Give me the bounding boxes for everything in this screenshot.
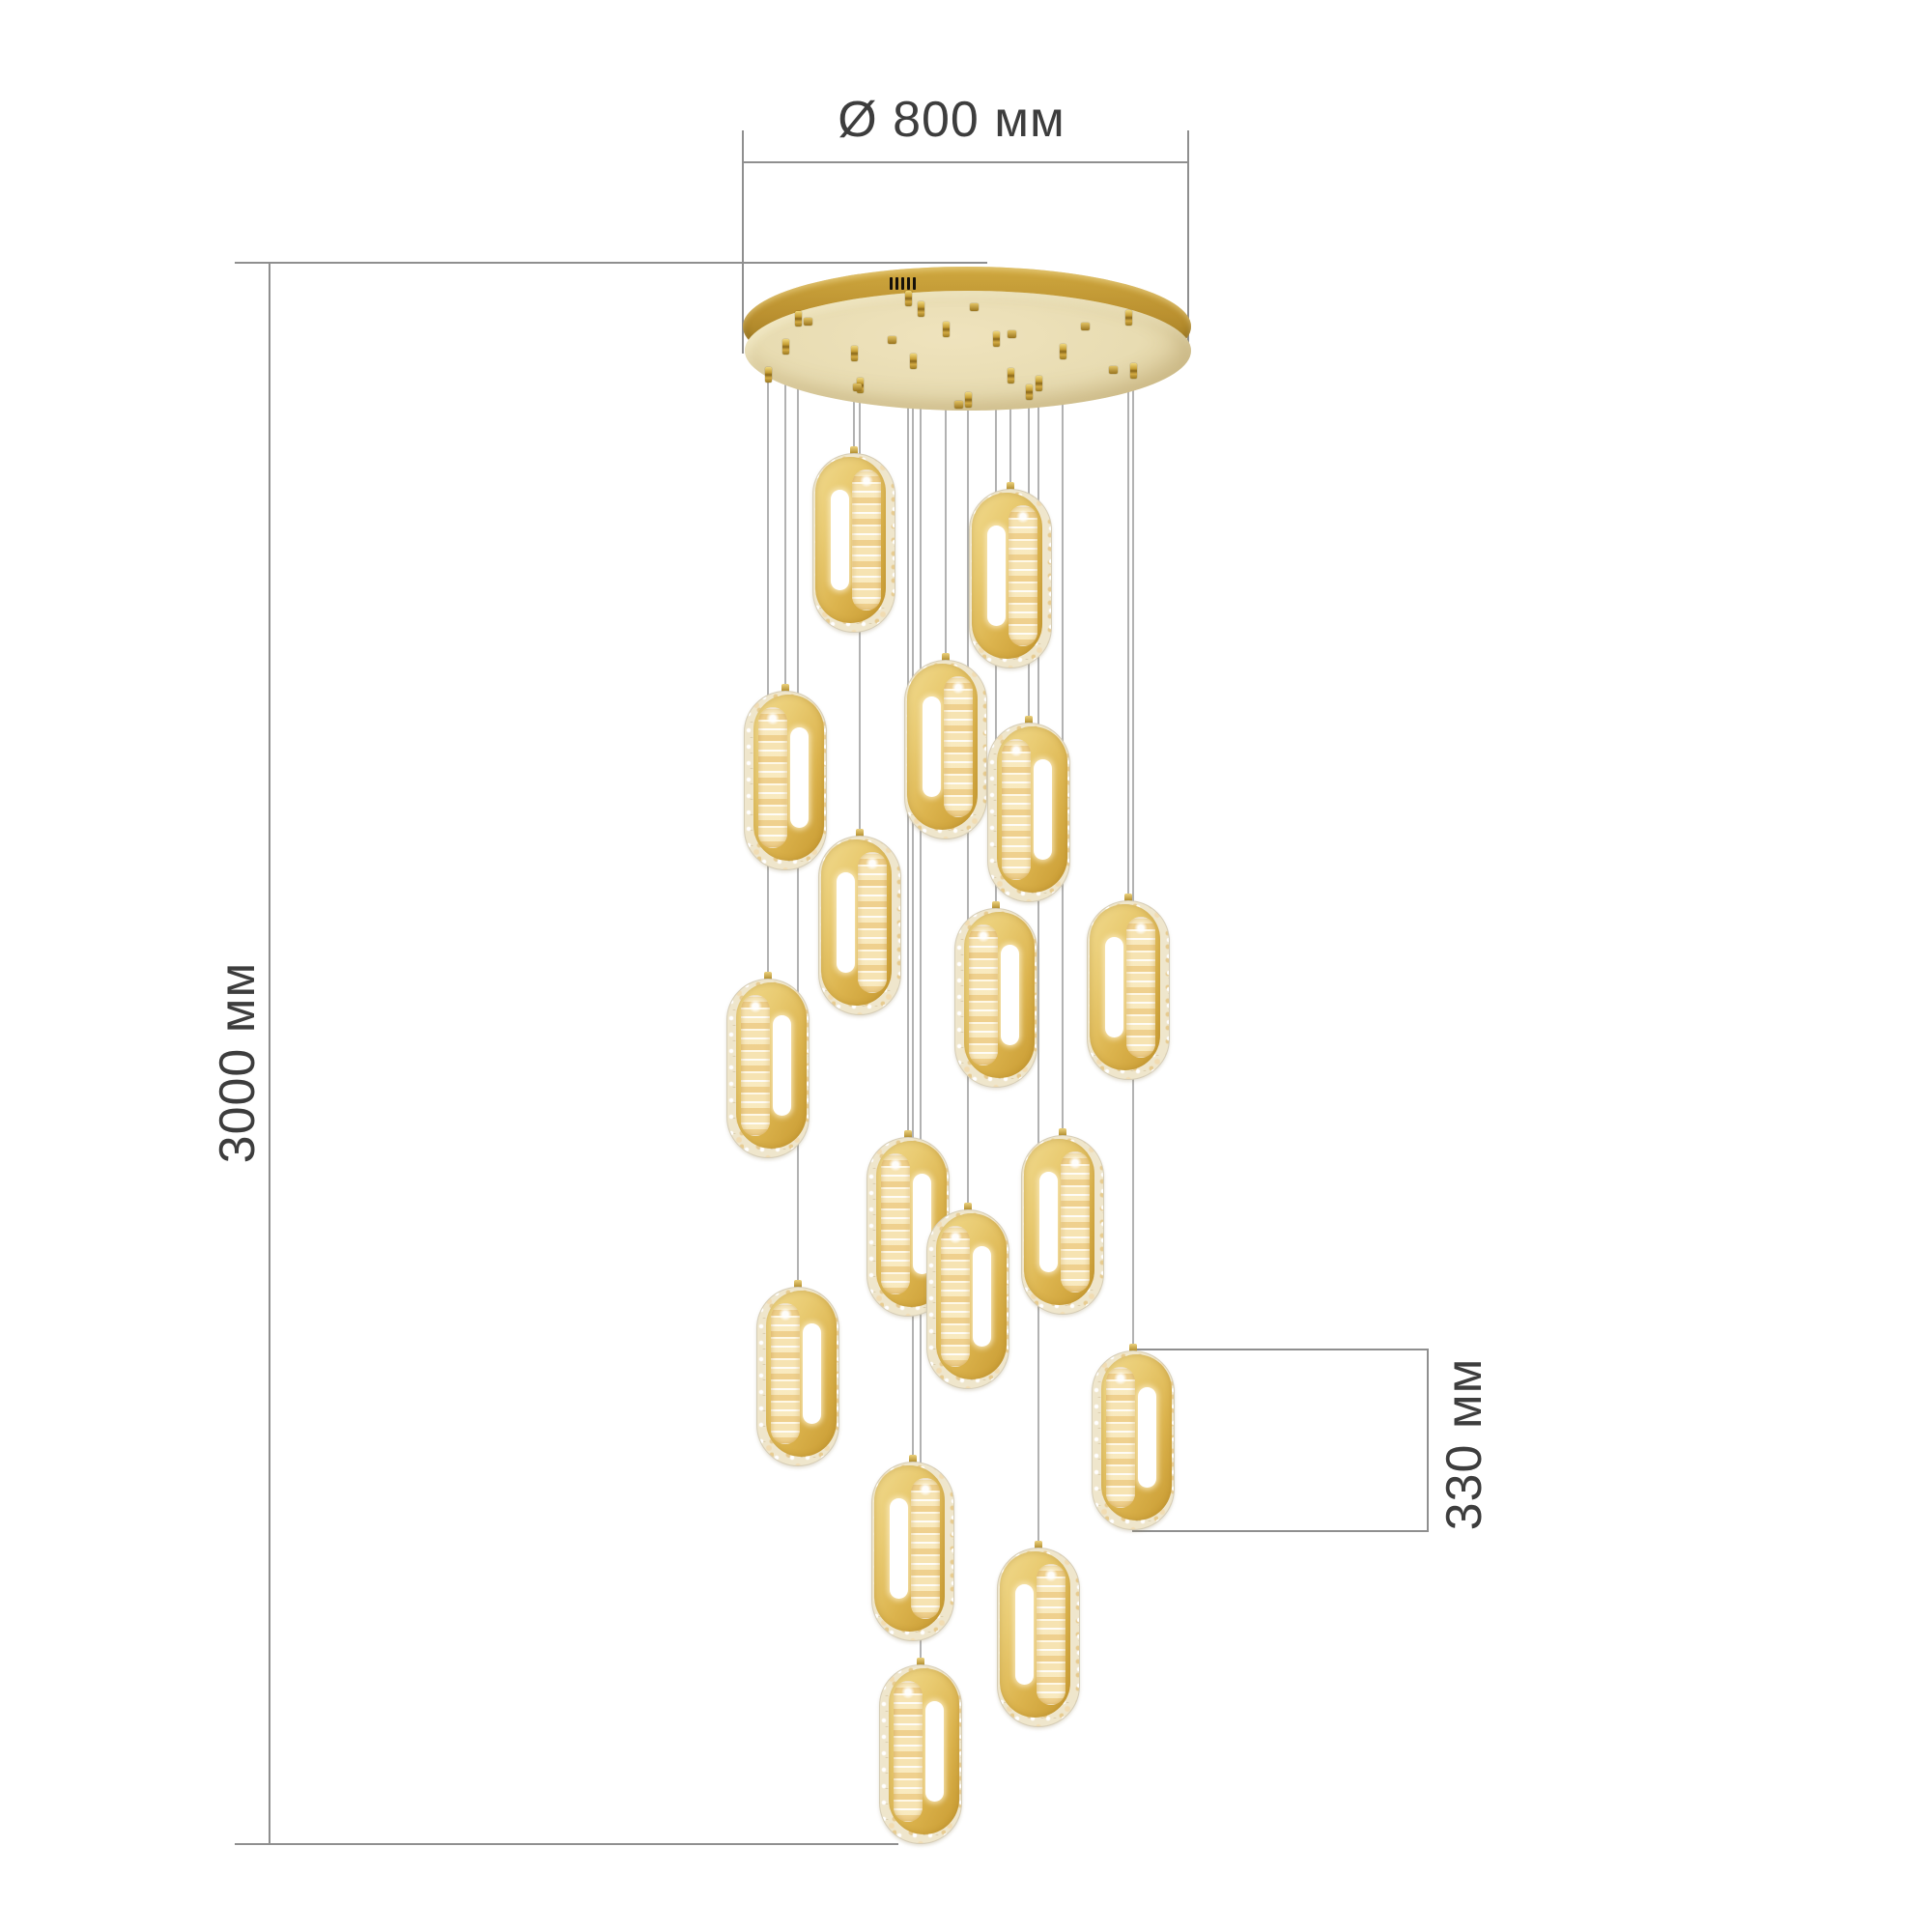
canopy-vent-slot (890, 277, 893, 290)
pendant-crystal-rim (969, 489, 1052, 668)
pendant-center-hole (890, 1498, 908, 1599)
pendant-gold-band (889, 1668, 959, 1834)
canopy-cable-grip (943, 322, 950, 337)
pendant-ring (726, 979, 810, 1158)
pendant-crystal-rim (756, 1287, 839, 1466)
pendant-led-crystal-strip (1009, 505, 1037, 646)
pendant-center-hole (773, 1015, 791, 1116)
pendant-gold-band (1000, 1551, 1070, 1718)
canopy-cable-grip (905, 291, 912, 306)
pendant-center-hole (1039, 1172, 1058, 1272)
dimension-line (743, 161, 1188, 163)
canopy-vent-slot (895, 277, 898, 290)
pendant-center-hole (1105, 937, 1123, 1037)
canopy-vent-slot (901, 277, 904, 290)
canopy-screw (804, 318, 812, 326)
suspension-wire (784, 351, 786, 691)
pendant-center-hole (837, 872, 855, 973)
dimension-diagram: Ø 800 мм 3000 мм 330 мм (0, 0, 1932, 1932)
pendant-gold-band (1090, 904, 1160, 1070)
pendant-gold-band (874, 1465, 945, 1632)
pendant-ring (1092, 1350, 1175, 1530)
pendant-crystal-rim (812, 453, 895, 633)
pendant-led-crystal-strip (858, 852, 887, 993)
pendant-height-dimension-label: 330 мм (1437, 1338, 1492, 1550)
pendant-crystal-rim (1021, 1135, 1104, 1315)
pendant-ring (812, 453, 895, 633)
pendant-center-hole (1015, 1584, 1034, 1685)
pendant-ring (904, 660, 987, 839)
canopy-screw (853, 384, 862, 391)
canopy-screw (1008, 330, 1016, 338)
pendant-gold-band (736, 982, 807, 1149)
canopy-cable-grip (1026, 384, 1033, 400)
pendant-center-hole (923, 696, 941, 797)
canopy-screw (1109, 366, 1118, 374)
pendant-center-hole (803, 1323, 821, 1424)
pendant-ring (871, 1462, 954, 1641)
dimension-line (235, 1843, 898, 1845)
pendant-center-hole (831, 490, 849, 590)
canopy-cable-grip (1060, 344, 1066, 359)
pendant-ring (926, 1209, 1009, 1389)
pendant-led-crystal-strip (894, 1681, 923, 1822)
canopy-cable-grip (1036, 376, 1042, 391)
canopy-screw (954, 401, 963, 409)
pendant-crystal-rim (871, 1462, 954, 1641)
pendant-gold-band (753, 695, 824, 861)
pendant-crystal-rim (904, 660, 987, 839)
canopy-cable-grip (910, 354, 917, 369)
pendant-led-crystal-strip (944, 676, 973, 817)
dimension-line (1427, 1349, 1429, 1532)
canopy-screw (1081, 323, 1090, 330)
pendant-center-hole (1138, 1387, 1156, 1488)
pendant-led-crystal-strip (1002, 739, 1031, 880)
canopy-cable-grip (765, 367, 772, 383)
pendant-gold-band (964, 912, 1035, 1078)
pendant-led-crystal-strip (741, 995, 770, 1136)
pendant-center-hole (973, 1246, 991, 1347)
canopy-cable-grip (1130, 363, 1137, 379)
pendant-ring (756, 1287, 839, 1466)
canopy-cable-grip (1125, 310, 1132, 326)
pendant-ring (879, 1664, 962, 1844)
pendant-gold-band (972, 493, 1042, 659)
pendant-led-crystal-strip (911, 1478, 940, 1619)
pendant-led-crystal-strip (1037, 1564, 1065, 1705)
pendant-crystal-rim (818, 836, 901, 1015)
pendant-gold-band (1024, 1139, 1094, 1305)
pendant-crystal-rim (926, 1209, 1009, 1389)
pendant-crystal-rim (1087, 900, 1170, 1080)
canopy-cable-grip (918, 301, 924, 317)
pendant-ring (997, 1548, 1080, 1727)
pendant-led-crystal-strip (941, 1226, 970, 1367)
pendant-gold-band (997, 726, 1067, 893)
pendant-gold-band (766, 1291, 837, 1457)
pendant-led-crystal-strip (771, 1303, 800, 1444)
suspension-wire (1132, 375, 1134, 1350)
canopy-cable-grip (851, 346, 858, 361)
dimension-line (1132, 1530, 1429, 1532)
pendant-ring (987, 723, 1070, 902)
canopy-cable-grip (795, 311, 802, 327)
pendant-crystal-rim (726, 979, 810, 1158)
total-height-dimension-label: 3000 мм (211, 918, 265, 1207)
canopy-vent-slot (913, 277, 916, 290)
canopy-screw (888, 336, 896, 344)
canopy-cable-grip (782, 339, 789, 355)
pendant-center-hole (925, 1701, 944, 1802)
pendant-ring (818, 836, 901, 1015)
pendant-ring (969, 489, 1052, 668)
pendant-crystal-rim (879, 1664, 962, 1844)
pendant-center-hole (1034, 759, 1052, 860)
pendant-crystal-rim (997, 1548, 1080, 1727)
pendant-led-crystal-strip (969, 924, 998, 1065)
pendant-led-crystal-strip (1106, 1367, 1135, 1508)
canopy-cable-grip (1008, 368, 1014, 384)
pendant-ring (954, 908, 1037, 1088)
pendant-ring (1021, 1135, 1104, 1315)
pendant-led-crystal-strip (758, 707, 787, 848)
pendant-center-hole (1001, 945, 1019, 1045)
pendant-led-crystal-strip (1126, 917, 1155, 1058)
pendant-crystal-rim (987, 723, 1070, 902)
pendant-gold-band (907, 664, 978, 830)
pendant-led-crystal-strip (881, 1153, 910, 1294)
pendant-crystal-rim (954, 908, 1037, 1088)
diameter-dimension-label: Ø 800 мм (758, 93, 1145, 147)
canopy-cable-grip (993, 331, 1000, 347)
canopy-cable-grip (965, 392, 972, 408)
canopy-vent-slot (907, 277, 910, 290)
pendant-crystal-rim (1092, 1350, 1175, 1530)
dimension-line (269, 263, 270, 1844)
suspension-wire (767, 379, 769, 979)
pendant-crystal-rim (744, 691, 827, 870)
pendant-gold-band (815, 457, 886, 623)
dimension-line (1132, 1349, 1429, 1350)
pendant-gold-band (1101, 1354, 1172, 1520)
dimension-line (235, 262, 987, 264)
pendant-gold-band (821, 839, 892, 1006)
pendant-ring (744, 691, 827, 870)
pendant-led-crystal-strip (1061, 1151, 1090, 1293)
suspension-wire (1127, 322, 1129, 900)
pendant-led-crystal-strip (852, 469, 881, 611)
pendant-center-hole (987, 526, 1006, 626)
canopy-screw (970, 303, 979, 311)
pendant-ring (1087, 900, 1170, 1080)
pendant-gold-band (936, 1213, 1007, 1379)
pendant-center-hole (790, 727, 809, 828)
